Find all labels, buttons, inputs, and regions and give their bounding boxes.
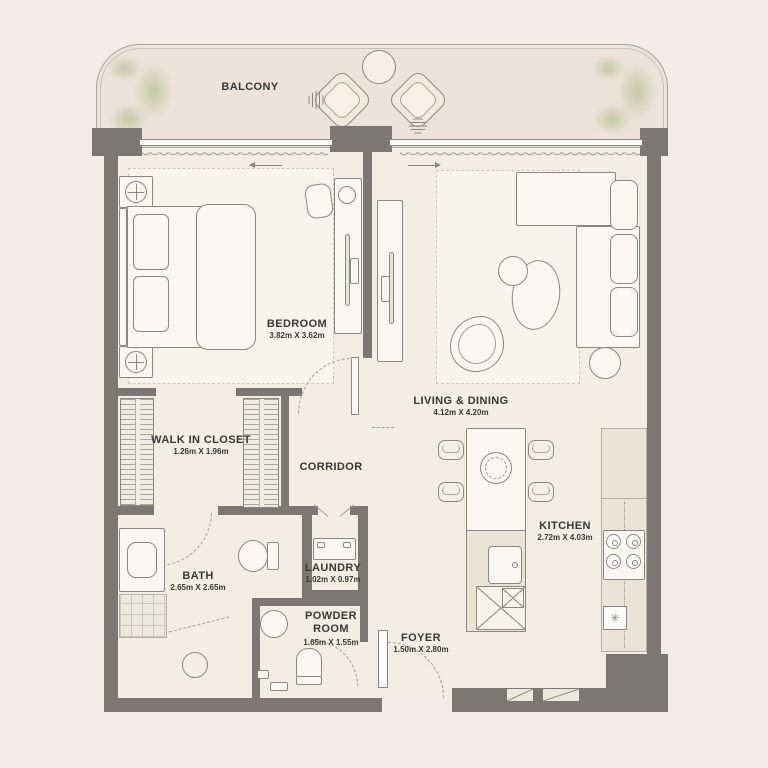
nightstand-lamp-top-icon xyxy=(125,181,147,203)
room-label-walk-in-closet: WALK IN CLOSET xyxy=(151,434,251,447)
bar-stool-4 xyxy=(528,482,554,502)
balcony-table xyxy=(362,50,396,84)
powder-basin xyxy=(260,610,288,638)
sofa-cushion-1 xyxy=(610,180,638,230)
shower-drain-icon xyxy=(182,652,208,678)
wall-laundry-right xyxy=(358,506,368,598)
bed-headboard xyxy=(119,208,127,346)
bed-pillow-2 xyxy=(133,276,169,332)
room-label-bath: BATH xyxy=(182,570,213,583)
bath-toilet-tank xyxy=(267,542,279,570)
bedroom-desk-lamp-icon xyxy=(338,186,356,204)
island-centerpiece-inner xyxy=(485,457,507,479)
room-dims-living-dining: 4.12m X 4.20m xyxy=(433,408,488,417)
wall-laundry-bottom xyxy=(302,590,368,598)
room-label-laundry: LAUNDRY xyxy=(305,562,361,575)
slide-arrow-right-icon xyxy=(408,165,440,166)
room-label-bedroom: BEDROOM xyxy=(267,318,327,331)
room-dims-walk-in-closet: 1.26m X 1.96m xyxy=(173,447,228,456)
room-label-foyer: FOYER xyxy=(401,632,441,645)
wall-divider-bedroom-living xyxy=(363,150,372,358)
room-dims-laundry: 1.02m X 0.97m xyxy=(305,575,360,584)
powder-toilet-bowl xyxy=(296,648,322,678)
wall-closet-top-b xyxy=(236,388,302,396)
sofa-cushion-2 xyxy=(610,234,638,284)
room-label-kitchen: KITCHEN xyxy=(539,520,591,533)
bed-pillow-1 xyxy=(133,214,169,270)
wall-powder-top xyxy=(252,598,368,606)
window-bedroom xyxy=(140,139,332,146)
bedroom-door-leaf xyxy=(351,357,359,415)
bar-stool-3 xyxy=(528,440,554,460)
burner-3-icon xyxy=(606,554,621,569)
wall-bath-top-a xyxy=(104,506,154,515)
wardrobe-right xyxy=(243,398,279,508)
washer-knob-left xyxy=(317,542,325,548)
sofa-cushion-3 xyxy=(610,287,638,337)
room-dims-powder-room: 1.65m X 1.55m xyxy=(303,638,358,647)
floor-plan: BALCONY xyxy=(0,0,768,768)
burner-4-icon xyxy=(626,554,641,569)
wall-laundry-left xyxy=(302,506,312,598)
entry-door-leaf xyxy=(378,630,388,688)
wardrobe-left xyxy=(120,398,154,506)
entry-niche-1 xyxy=(507,689,533,701)
room-label-corridor: CORRIDOR xyxy=(299,461,362,474)
room-label-living-dining: LIVING & DINING xyxy=(413,395,508,408)
bedroom-tv-mount xyxy=(350,258,359,284)
divider-dash xyxy=(372,427,394,428)
slide-arrow-left-icon xyxy=(250,165,282,166)
bed-duvet xyxy=(196,204,256,350)
accent-chair xyxy=(450,316,504,372)
burner-1-icon xyxy=(606,534,621,549)
entry-niche-2 xyxy=(543,689,579,701)
bath-toilet-bowl xyxy=(238,540,268,572)
burner-2-icon xyxy=(626,534,641,549)
room-dims-bath: 2.65m X 2.65m xyxy=(170,583,225,592)
kitchen-counter-divider xyxy=(601,498,647,499)
room-dims-kitchen: 2.72m X 4.03m xyxy=(537,533,592,542)
nightstand-lamp-bottom-icon xyxy=(125,351,147,373)
window-living xyxy=(390,139,642,146)
powder-bin xyxy=(257,670,269,679)
wall-left xyxy=(104,150,118,710)
wall-closet-top-a xyxy=(118,388,156,396)
wall-powder-left xyxy=(252,598,260,698)
curtain-bedroom xyxy=(142,152,328,161)
bath-sink xyxy=(127,542,157,578)
side-table xyxy=(589,347,621,379)
living-tv-mount xyxy=(381,276,390,302)
kitchen-faucet-icon xyxy=(512,562,518,568)
bath-stool xyxy=(270,682,288,691)
coffee-table-small xyxy=(498,256,528,286)
powder-toilet-tank xyxy=(296,676,322,685)
bar-stool-1 xyxy=(438,440,464,460)
wall-right xyxy=(647,150,661,656)
dishwasher-inner xyxy=(502,588,524,608)
room-dims-foyer: 1.50m X 2.80m xyxy=(393,645,448,654)
wall-closet-right xyxy=(281,396,289,508)
wall-bottom-left xyxy=(104,698,382,712)
shower-tray xyxy=(119,594,167,638)
bedroom-desk-chair xyxy=(304,182,334,219)
wall-corner-entry xyxy=(606,654,668,690)
curtain-living xyxy=(400,152,640,161)
sofa-chaise xyxy=(516,172,616,226)
bar-stool-2 xyxy=(438,482,464,502)
wall-pillar-top-center xyxy=(330,126,392,152)
washer-knob-right xyxy=(343,542,351,548)
appliance-asterisk-icon: ✳ xyxy=(603,606,627,630)
room-label-powder-room: POWDER ROOM xyxy=(295,610,367,635)
room-dims-bedroom: 3.82m X 3.62m xyxy=(269,331,324,340)
room-label-balcony: BALCONY xyxy=(221,81,278,94)
